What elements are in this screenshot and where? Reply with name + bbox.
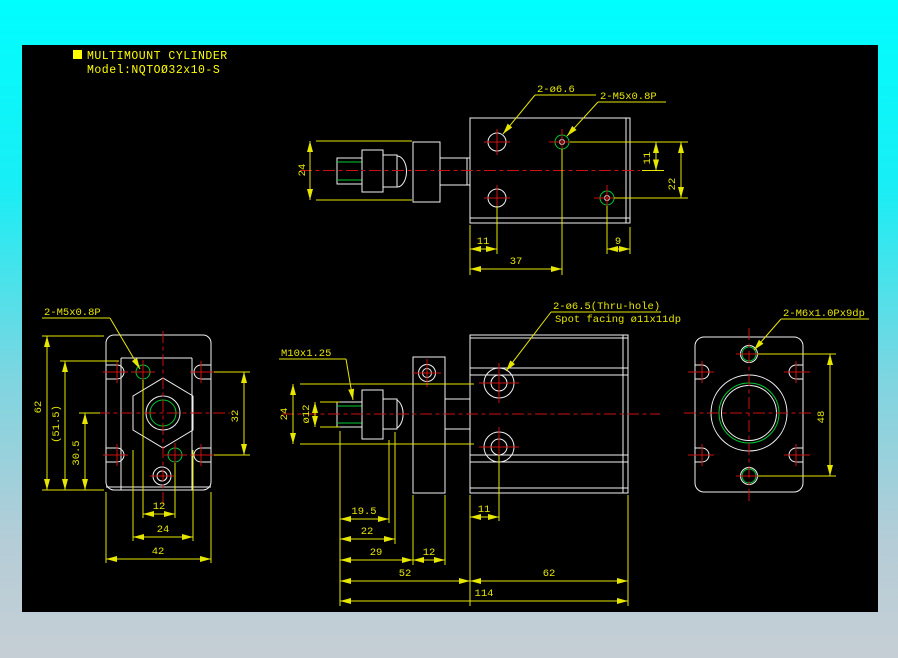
leader-tap-label: 2-M6x1.0Px9dp [783, 308, 865, 320]
dim-edge-left: 11 [477, 236, 490, 248]
dim-edge-right: 9 [615, 236, 621, 248]
leader-tap-label: 2-M5x0.8P [44, 307, 101, 319]
dim-rod-dia: ø12 [301, 405, 313, 424]
dim-tap-span: 48 [816, 411, 828, 424]
dim-bracket-thk: 12 [423, 547, 436, 559]
dim-hole-offset: 11 [642, 152, 654, 165]
leader-thru-hole-line1: 2-ø6.5(Thru-hole) [553, 301, 660, 313]
product-title: MULTIMOUNT CYLINDER [87, 50, 228, 63]
title-block: MULTIMOUNT CYLINDER Model:NQTOØ32x10-S [73, 50, 228, 77]
leader-tap-label: 2-M5x0.8P [600, 91, 657, 103]
dim-head-len: 52 [399, 568, 412, 580]
dim-body-len: 62 [543, 568, 556, 580]
leader-thru-hole-line2: Spot facing ø11x11dp [555, 314, 681, 326]
dim-rod-mount: 24 [279, 408, 291, 421]
window-frame: MULTIMOUNT CYLINDER Model:NQTOØ32x10-S [0, 0, 898, 658]
leader-hole-label: 2-ø6.6 [537, 84, 575, 96]
dim-tap-offset: 12 [153, 501, 166, 513]
dim-ref-height: (51.5) [51, 405, 63, 443]
drawing-canvas [22, 45, 878, 612]
dim-rod-ext: 22 [361, 526, 374, 538]
dim-hole-inset: 11 [478, 504, 491, 516]
dim-hex: 24 [157, 524, 170, 536]
dim-span: 37 [510, 256, 523, 268]
dim-to-bracket: 29 [370, 547, 383, 559]
dim-slot-span: 32 [230, 410, 242, 423]
leader-rod-thread-label: M10x1.25 [281, 348, 331, 360]
cad-drawing: MULTIMOUNT CYLINDER Model:NQTOØ32x10-S [0, 0, 898, 658]
dim-center-bottom: 30.5 [71, 440, 83, 465]
model-number: Model:NQTOØ32x10-S [87, 64, 220, 77]
dim-total-len: 114 [475, 588, 494, 600]
dim-width: 42 [152, 546, 165, 558]
dim-hole-span: 22 [667, 178, 679, 191]
title-bullet-icon [73, 50, 82, 59]
dim-depth: 24 [297, 164, 309, 177]
dim-thread-len: 19.5 [351, 506, 376, 518]
dim-height: 62 [33, 401, 45, 414]
